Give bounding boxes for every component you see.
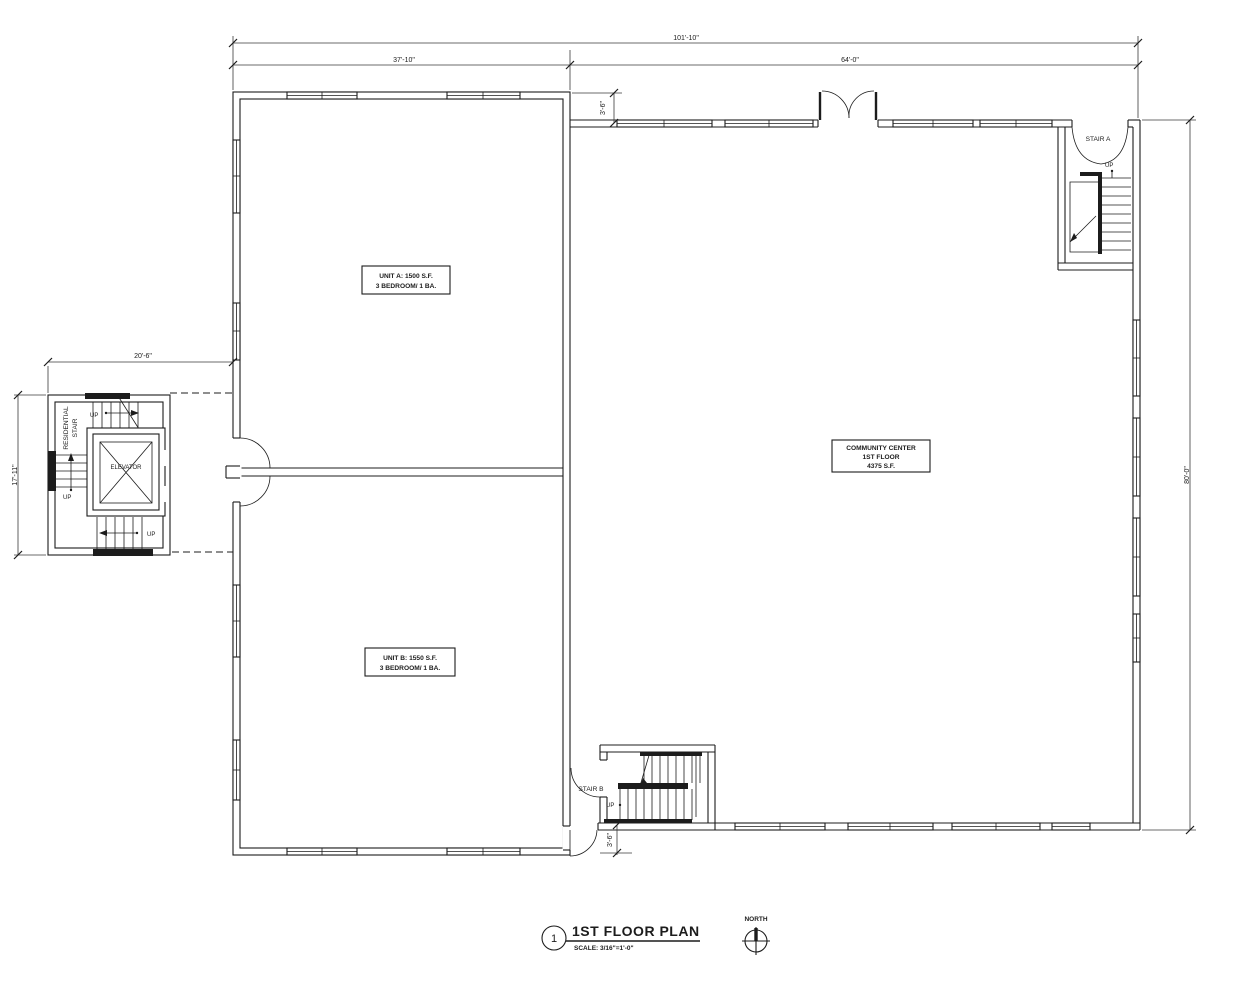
window — [1133, 418, 1140, 496]
window — [893, 120, 973, 127]
window — [980, 120, 1052, 127]
dimension-top-jog: 3'-6" — [572, 89, 622, 127]
stair-a-door-swing — [1101, 127, 1128, 164]
community-center-windows — [617, 120, 1140, 830]
dimension-bottom-jog: 3'-6" — [600, 821, 632, 857]
community-text-line3: 4375 S.F. — [867, 463, 895, 470]
community-center-walls — [570, 120, 1140, 830]
dim-left-wing-width: 37'-10" — [393, 57, 415, 64]
tower-top-up-label: UP — [90, 413, 98, 419]
window — [617, 120, 712, 127]
dim-bottom-wall-offset: 3'-6" — [607, 833, 614, 847]
residential-stair-label-line1: RESIDENTIAL — [63, 406, 70, 450]
unit-b-label: UNIT B: 1550 S.F. 3 BEDROOM/ 1 BA. — [365, 648, 455, 676]
window — [233, 740, 240, 800]
exterior-door-swing — [570, 830, 597, 856]
stair-a-up-label: UP — [1105, 163, 1113, 169]
stair-a-label: STAIR A — [1086, 136, 1111, 143]
dimension-right: 80'-0" — [1142, 116, 1196, 834]
unit-a-label: UNIT A: 1500 S.F. 3 BEDROOM/ 1 BA. — [362, 266, 450, 294]
window — [1133, 614, 1140, 662]
window — [233, 140, 240, 213]
sheet-title: 1ST FLOOR PLAN — [572, 923, 700, 939]
window — [233, 303, 240, 360]
window — [233, 585, 240, 657]
unit-a-text-line2: 3 BEDROOM/ 1 BA. — [376, 283, 437, 290]
stair-a-door-swing — [1072, 127, 1101, 164]
elevator-stair-tower: UP UP UP ELEVATOR RESIDENTIAL STAIR — [48, 393, 233, 556]
stair-b-up-label: UP — [606, 803, 614, 809]
window — [952, 823, 1040, 830]
detail-number: 1 — [551, 933, 557, 945]
window — [848, 823, 933, 830]
tower-left-up-label: UP — [63, 495, 71, 501]
unit-b-text-line1: UNIT B: 1550 S.F. — [383, 655, 437, 662]
stair-b: UP STAIR B — [563, 745, 716, 856]
stair-b-label: STAIR B — [578, 786, 604, 793]
window — [1133, 320, 1140, 396]
north-arrow-icon: NORTH — [742, 916, 770, 955]
unit-a-text-line1: UNIT A: 1500 S.F. — [379, 273, 433, 280]
dim-community-height: 80'-0" — [1184, 466, 1191, 484]
window — [447, 848, 520, 855]
dim-overall-width: 101'-10" — [673, 35, 699, 42]
sheet-scale: SCALE: 3/16"=1'-0" — [574, 945, 634, 952]
residential-wing-walls — [226, 92, 570, 855]
window — [725, 120, 813, 127]
tower-bottom-up-label: UP — [147, 532, 155, 538]
dim-tower-width: 20'-6" — [134, 353, 152, 360]
stair-a: UP STAIR A — [1058, 127, 1133, 270]
residential-stair-label-line2: STAIR — [72, 418, 79, 437]
window — [1052, 823, 1090, 830]
entry-double-door — [820, 91, 876, 120]
window — [735, 823, 825, 830]
unit-b-text-line2: 3 BEDROOM/ 1 BA. — [380, 665, 441, 672]
dim-tower-height: 17'-11" — [12, 464, 19, 486]
dim-community-width: 64'-0" — [841, 57, 859, 64]
floor-plan-drawing: 101'-10" 37'-10" 64'-0" — [0, 0, 1259, 982]
window — [447, 92, 520, 99]
community-text-line1: COMMUNITY CENTER — [846, 445, 916, 452]
window — [1133, 518, 1140, 596]
north-label: NORTH — [744, 916, 767, 923]
community-text-line2: 1ST FLOOR — [863, 454, 900, 461]
window — [287, 848, 357, 855]
dim-top-wall-offset: 3'-6" — [600, 101, 607, 115]
floor-plan-sheet: 101'-10" 37'-10" 64'-0" — [0, 0, 1259, 982]
community-center-label: COMMUNITY CENTER 1ST FLOOR 4375 S.F. — [832, 440, 930, 472]
window — [287, 92, 357, 99]
title-block: 1 1ST FLOOR PLAN SCALE: 3/16"=1'-0" — [542, 923, 700, 952]
elevator-label: ELEVATOR — [110, 465, 142, 471]
